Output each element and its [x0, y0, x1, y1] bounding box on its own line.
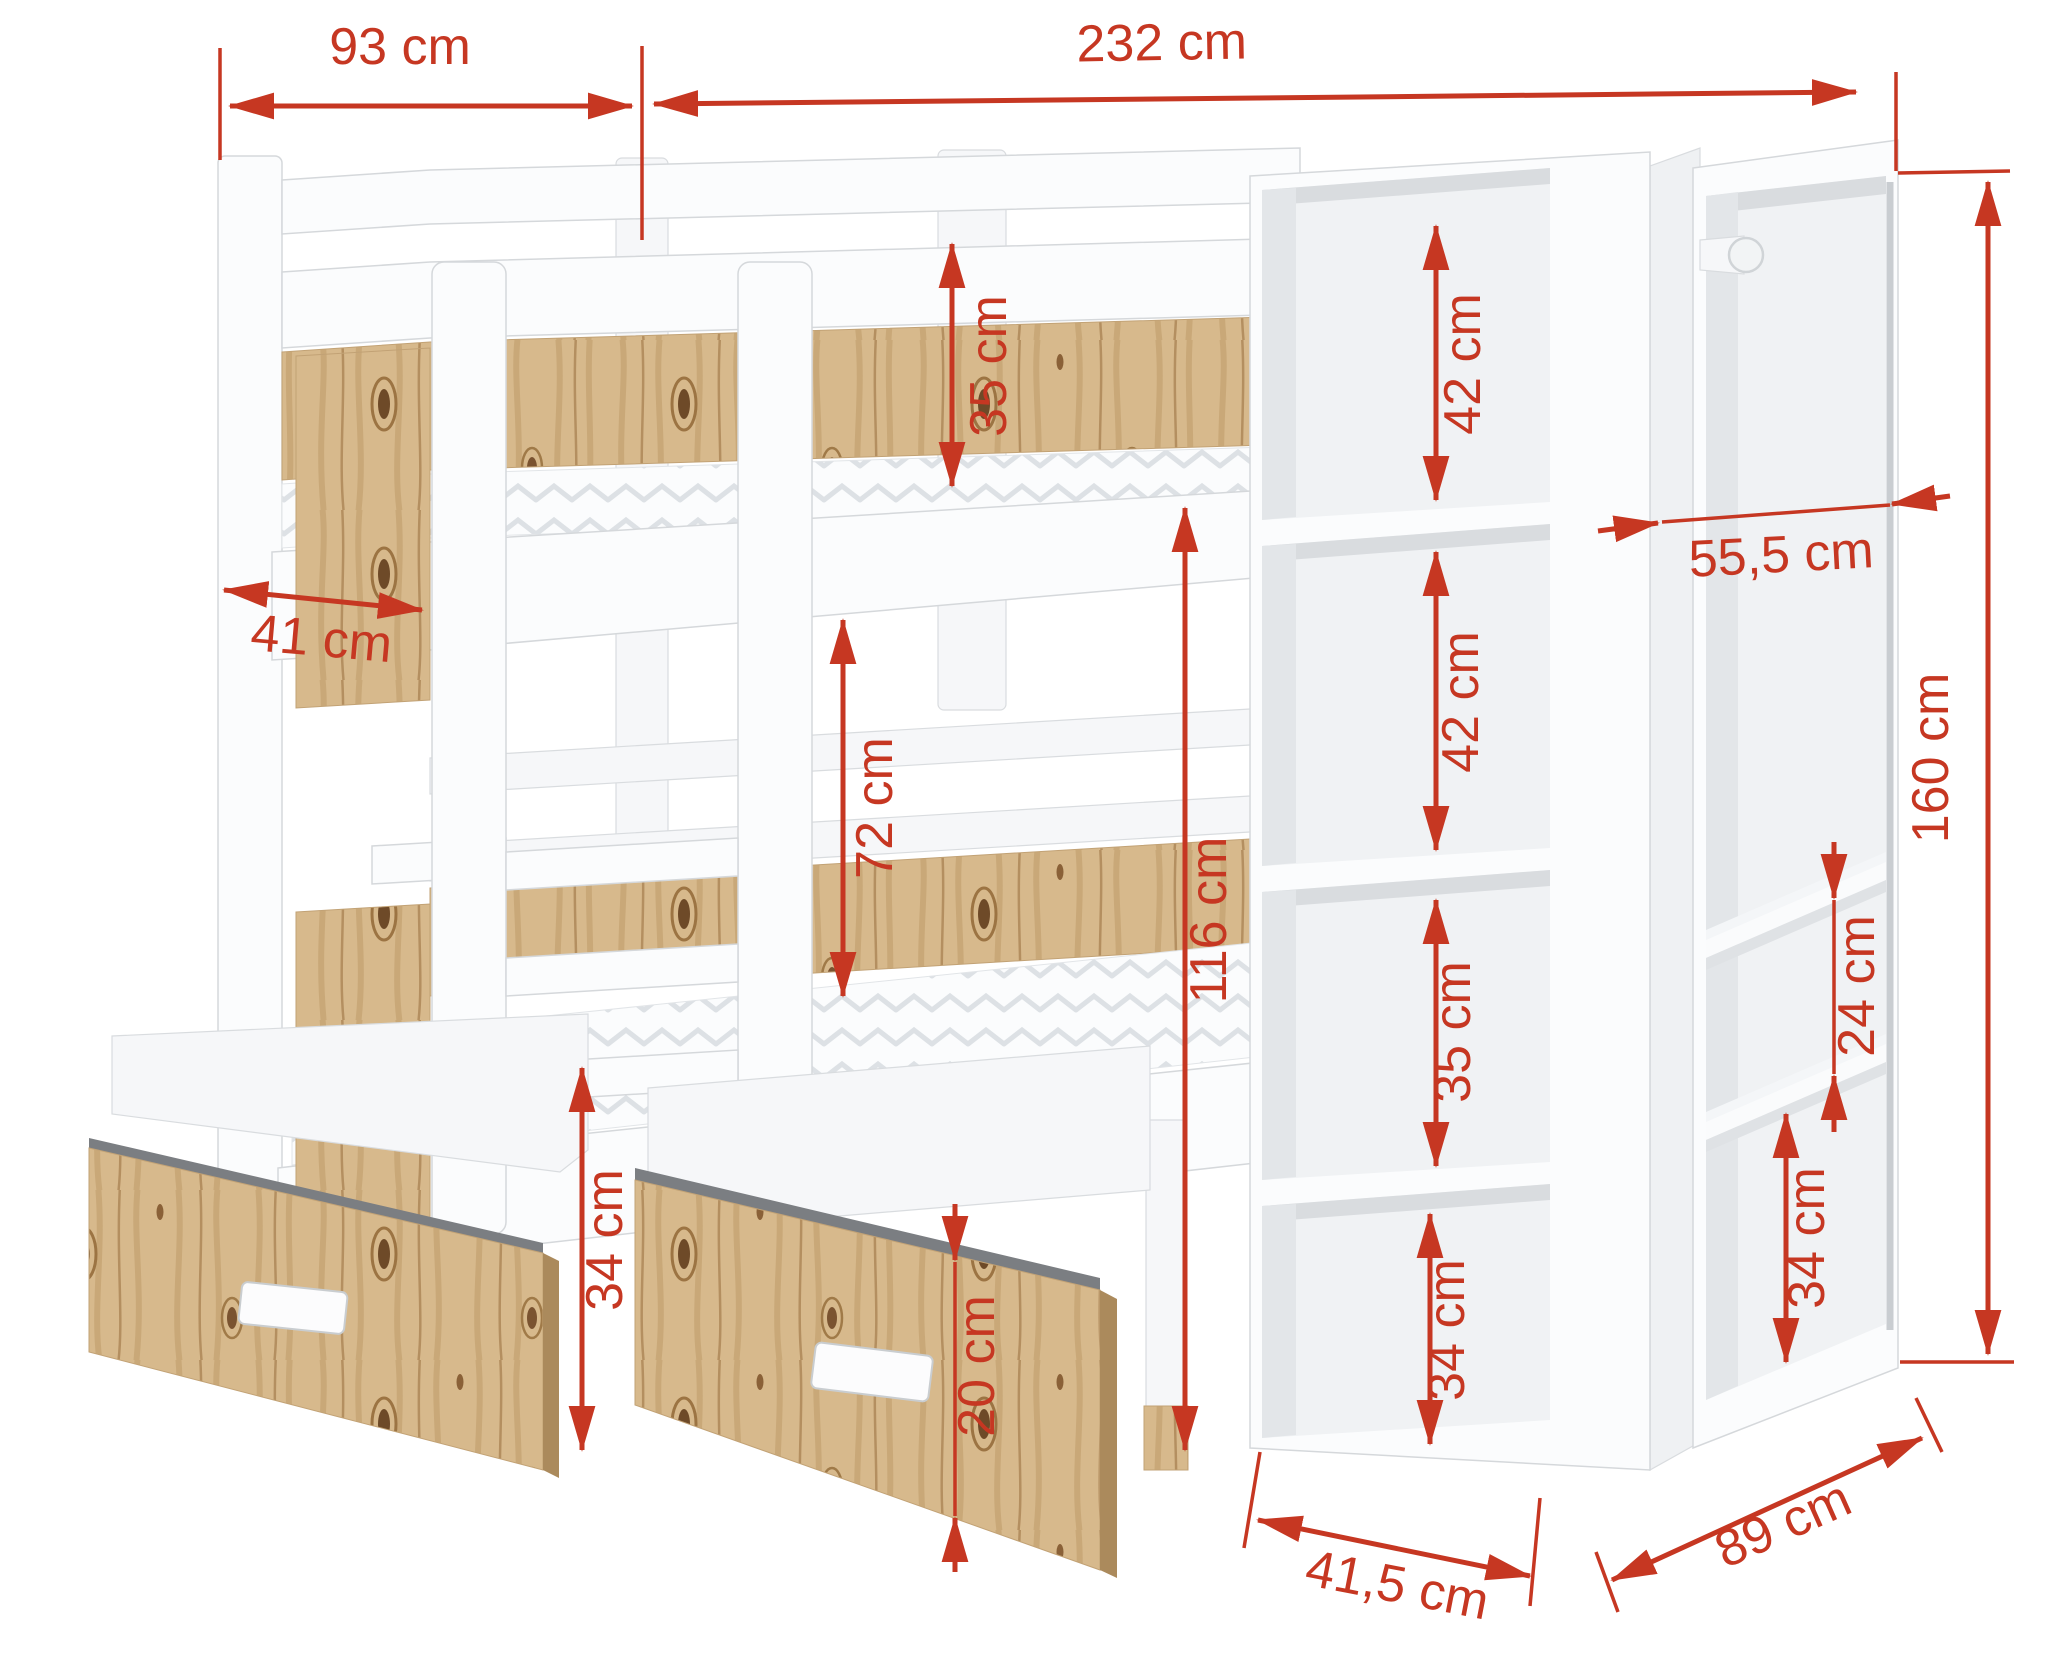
hanging-rod-end-cap	[1729, 238, 1763, 272]
dim-label-drawer-front-height: 20 cm	[948, 1295, 1006, 1437]
shelf-compartment-3-sidewall	[1262, 890, 1296, 1180]
bed-front-right-foot	[1144, 1406, 1188, 1470]
dim-overall-width: 232 cm	[654, 13, 1896, 171]
dim-label-overall-width: 232 cm	[1076, 13, 1248, 74]
dim-label-wardrobe-shelf-gap: 24 cm	[1828, 915, 1886, 1057]
dim-label-shelf-unit-depth: 41,5 cm	[1301, 1539, 1494, 1631]
shelf-compartment-1	[1262, 168, 1550, 520]
dim-label-guard-rail-height: 35 cm	[960, 295, 1018, 437]
dim-label-total-height: 160 cm	[1902, 673, 1960, 844]
shelf-compartment-4-sidewall	[1262, 1204, 1296, 1438]
furniture-dimension-diagram: 93 cm 232 cm 35 cm 41 cm 42 cm 55,	[0, 0, 2048, 1672]
dim-label-wardrobe-width: 89 cm	[1707, 1469, 1860, 1580]
dim-label-shelf-opening-top: 42 cm	[1434, 293, 1492, 435]
bed-front-right-leg	[1146, 1120, 1186, 1420]
shelf-compartment-2-sidewall	[1262, 544, 1296, 866]
dim-top-bunk-height: 116 cm	[1180, 508, 1238, 1450]
dim-label-drawer-box-height: 34 cm	[576, 1169, 634, 1311]
dim-shelf-unit-depth: 41,5 cm	[1244, 1452, 1540, 1631]
dim-total-height: 160 cm	[1898, 171, 2014, 1362]
dim-label-shelf-opening-third: 35 cm	[1424, 961, 1482, 1103]
dim-label-wardrobe-bottom-opening: 34 cm	[1778, 1167, 1836, 1309]
shelf-compartment-4	[1262, 1184, 1550, 1438]
dim-label-shelf-opening-second: 42 cm	[1432, 631, 1490, 773]
right-drawer-front-edge	[1100, 1290, 1117, 1578]
ladder-right-rail	[738, 262, 812, 1202]
dim-label-footboard-width: 41 cm	[248, 604, 394, 674]
wardrobe-interior-left-wall	[1706, 192, 1738, 1400]
dim-label-bunk-clearance: 72 cm	[846, 737, 904, 879]
dim-label-wardrobe-depth: 55,5 cm	[1687, 521, 1875, 589]
diagram-canvas: 93 cm 232 cm 35 cm 41 cm 42 cm 55,	[0, 0, 2048, 1672]
shelf-compartment-1-sidewall	[1262, 188, 1296, 520]
upper-top-rail	[282, 148, 1300, 234]
shelf-compartment-2	[1262, 524, 1550, 866]
shelf-compartment-3	[1262, 870, 1550, 1180]
dim-label-shelf-opening-bottom: 34 cm	[1418, 1259, 1476, 1401]
left-drawer-front-edge	[543, 1253, 559, 1478]
dim-label-bed-end-width: 93 cm	[329, 18, 471, 76]
dim-label-top-bunk-height: 116 cm	[1180, 837, 1238, 1004]
